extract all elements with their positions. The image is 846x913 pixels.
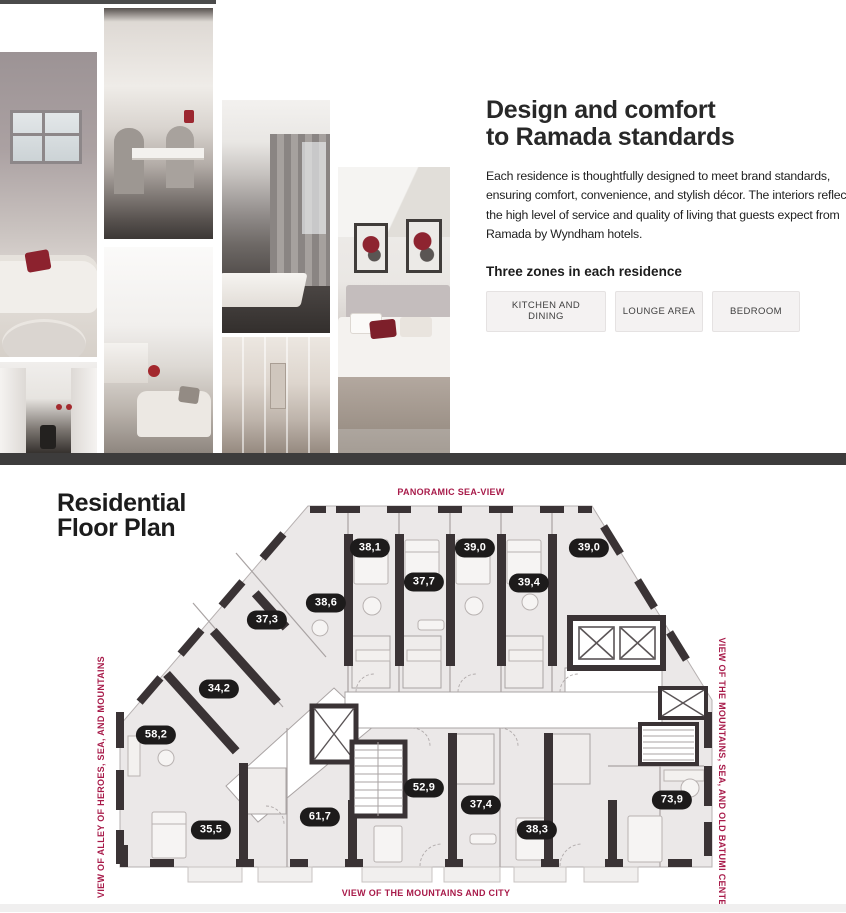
- photo-accent: [184, 110, 194, 123]
- unit-area-badge: 38,1: [350, 539, 390, 558]
- zone-buttons: KITCHEN AND DINING LOUNGE AREA BEDROOM: [486, 291, 826, 332]
- photo-accent: [338, 377, 450, 429]
- photo-accent: [10, 110, 82, 164]
- unit-area-badge: 38,3: [517, 821, 557, 840]
- unit-area-badge: 39,4: [509, 574, 549, 593]
- unit-area-badge: 39,0: [455, 539, 495, 558]
- photo-accent: [137, 391, 211, 437]
- photo-accent: [104, 343, 148, 383]
- photo-living-room: [0, 52, 97, 357]
- photo-accent: [66, 404, 72, 410]
- photo-accent: [406, 219, 442, 273]
- photo-bathroom: [222, 337, 330, 453]
- photo-lounge: [104, 247, 213, 453]
- photo-accent: [302, 142, 326, 234]
- unit-area-badge: 37,4: [461, 796, 501, 815]
- hero-text-block: Design and comfort to Ramada standards E…: [486, 97, 826, 332]
- lounge-area-button[interactable]: LOUNGE AREA: [615, 291, 703, 332]
- section-divider-bar: [0, 453, 846, 465]
- photo-dining-curtains: [222, 100, 330, 333]
- photo-accent: [400, 317, 432, 337]
- unit-area-badge: 34,2: [199, 680, 239, 699]
- photo-accent: [148, 365, 160, 377]
- photo-accent: [56, 404, 62, 410]
- floor-plan-section: Residential Floor Plan: [0, 465, 846, 912]
- unit-area-badge: 35,5: [191, 821, 231, 840]
- kitchen-and-dining-button[interactable]: KITCHEN AND DINING: [486, 291, 606, 332]
- unit-area-badge: 37,3: [247, 611, 287, 630]
- batumi-center-label: VIEW OF THE MOUNTAINS, SEA, AND OLD BATU…: [717, 637, 727, 912]
- unit-area-badge: 61,7: [300, 808, 340, 827]
- sea-view-label: PANORAMIC SEA-VIEW: [397, 487, 504, 497]
- bedroom-button[interactable]: BEDROOM: [712, 291, 800, 332]
- photo-accent: [222, 273, 308, 307]
- unit-area-badge: 52,9: [404, 779, 444, 798]
- unit-area-badge: 73,9: [652, 791, 692, 810]
- photo-accent: [2, 319, 86, 357]
- photo-accent: [369, 319, 397, 340]
- zones-heading: Three zones in each residence: [486, 264, 826, 279]
- photo-edge-sliver: [0, 0, 216, 4]
- photo-accent: [178, 386, 200, 405]
- unit-area-badge: 38,6: [306, 594, 346, 613]
- photo-accent: [114, 128, 144, 194]
- photo-accent: [24, 249, 51, 273]
- photo-accent: [71, 368, 97, 453]
- alley-heroes-label: VIEW OF ALLEY OF HEROES, SEA, AND MOUNTA…: [96, 656, 106, 898]
- photo-accent: [40, 425, 56, 449]
- next-section-edge: [0, 904, 846, 912]
- unit-area-badge: 39,0: [569, 539, 609, 558]
- unit-area-badge: 58,2: [136, 726, 176, 745]
- photo-galley-kitchen: [0, 362, 97, 453]
- hero-section: Design and comfort to Ramada standards E…: [0, 0, 846, 465]
- mountains-city-label: VIEW OF THE MOUNTAINS AND CITY: [342, 888, 511, 898]
- hero-description: Each residence is thoughtfully designed …: [486, 167, 826, 245]
- photo-kitchen-dining: [104, 8, 213, 239]
- photo-bedroom: [338, 167, 450, 453]
- page-title: Design and comfort to Ramada standards: [486, 97, 826, 150]
- photo-accent: [0, 368, 26, 453]
- unit-area-badge: 37,7: [404, 573, 444, 592]
- photo-accent: [354, 223, 388, 273]
- photo-accent: [270, 363, 286, 409]
- photo-accent: [132, 148, 204, 158]
